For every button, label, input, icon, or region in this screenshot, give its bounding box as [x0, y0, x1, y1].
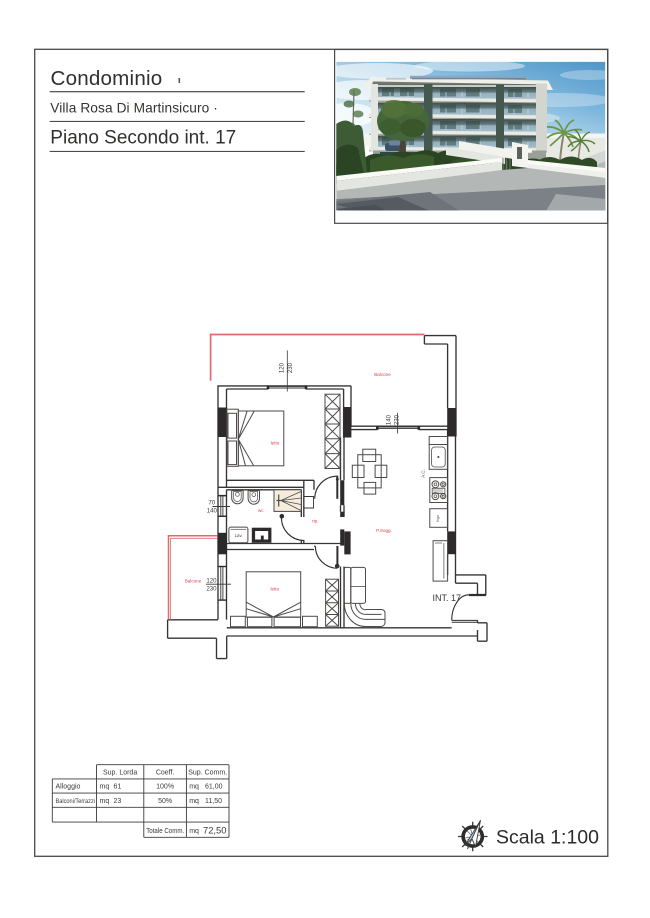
svg-text:140: 140: [207, 507, 218, 514]
svg-text:A.C.: A.C.: [421, 469, 426, 478]
svg-text:Coeff.: Coeff.: [156, 770, 175, 777]
svg-text:61: 61: [114, 784, 122, 791]
svg-text:mq: mq: [189, 784, 199, 791]
svg-text:Piano Secondo int. 17: Piano Secondo int. 17: [50, 128, 236, 149]
svg-text:INT. 17: INT. 17: [433, 593, 462, 603]
svg-text:70: 70: [208, 499, 215, 506]
svg-text:230: 230: [394, 414, 401, 425]
svg-text:letto: letto: [270, 587, 279, 592]
svg-text:Lav.: Lav.: [235, 533, 243, 538]
svg-text:23: 23: [114, 798, 122, 805]
svg-text:Condominio: Condominio: [51, 67, 163, 90]
svg-text:mq: mq: [189, 828, 199, 835]
svg-text:230: 230: [287, 362, 294, 373]
svg-text:wc: wc: [258, 508, 264, 513]
svg-text:100%: 100%: [156, 784, 174, 791]
svg-text:mq: mq: [189, 798, 199, 805]
svg-text:120: 120: [279, 362, 286, 373]
svg-text:rip.: rip.: [312, 519, 318, 524]
svg-text:letto: letto: [271, 441, 280, 446]
svg-text:Sup. Lorda: Sup. Lorda: [103, 770, 137, 777]
svg-text:Villa Rosa Di Martinsicuro ·: Villa Rosa Di Martinsicuro ·: [50, 101, 218, 116]
svg-text:frigo: frigo: [436, 515, 440, 522]
svg-text:Totale Comm.: Totale Comm.: [146, 828, 184, 835]
svg-text:Scala 1:100: Scala 1:100: [496, 827, 599, 849]
svg-text:61,00: 61,00: [205, 784, 223, 791]
svg-text:P.Sogg.: P.Sogg.: [376, 528, 392, 533]
svg-text:11,50: 11,50: [205, 798, 222, 805]
svg-text:Alloggio: Alloggio: [56, 784, 81, 791]
svg-text:230: 230: [206, 586, 217, 593]
svg-text:Sup. Comm.: Sup. Comm.: [188, 770, 227, 777]
svg-text:140: 140: [385, 414, 392, 425]
svg-text:mq: mq: [100, 798, 110, 805]
svg-text:mq: mq: [100, 784, 110, 791]
svg-text:Balcone: Balcone: [374, 372, 391, 377]
svg-text:Balconi/Terrazzi: Balconi/Terrazzi: [56, 798, 96, 805]
svg-text:120: 120: [206, 577, 217, 584]
svg-text:Balcone: Balcone: [185, 578, 202, 583]
svg-text:50%: 50%: [158, 798, 172, 805]
svg-text:72,50: 72,50: [203, 824, 226, 835]
